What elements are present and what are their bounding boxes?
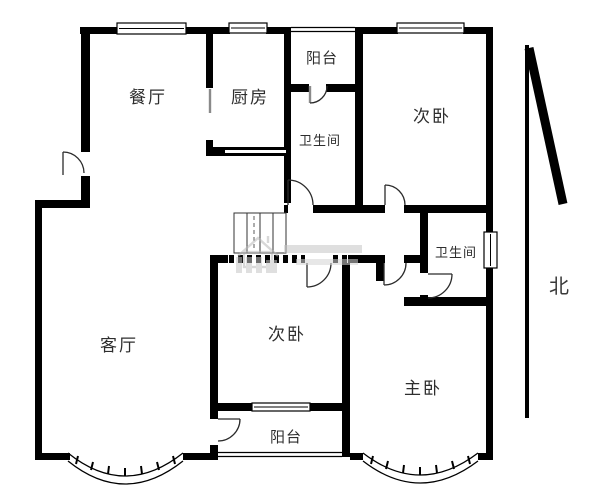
wall-bedmid-bottom-l: [218, 403, 252, 411]
north-arrow-barb: [529, 48, 563, 204]
label-bedroom-mid: 次卧: [268, 325, 306, 345]
door-entrance: [63, 152, 84, 175]
label-master-bedroom: 主卧: [404, 379, 442, 399]
wall-corridor-bottom-c: [404, 255, 428, 263]
wall-balcony-top-bottom-l: [284, 84, 309, 92]
wall-left-step: [35, 200, 90, 208]
wall-corridor-top-a: [284, 205, 288, 213]
wall-bath1-left: [284, 27, 291, 203]
door-bathroom-right: [428, 274, 452, 298]
wall-corridor-top-c: [404, 205, 490, 213]
wall-door-stub: [376, 263, 384, 281]
bay-window-master: [363, 453, 478, 483]
door-bedroom-top: [385, 185, 405, 205]
wall-left-upper: [81, 27, 90, 152]
stairs: [234, 213, 286, 253]
wall-bedmid-right: [342, 263, 350, 457]
wall-right-upper: [486, 27, 493, 232]
windows: [117, 23, 497, 411]
door-master: [384, 263, 406, 285]
wall-bottom-left-a: [35, 453, 70, 460]
wall-left-lower: [35, 200, 42, 460]
label-bathroom-top: 卫生间: [299, 134, 341, 149]
wall-kitchen-left: [206, 27, 213, 88]
wall-corridor-bottom-a: [210, 255, 228, 263]
wall-bedmid-left: [210, 263, 218, 419]
north-arrow: [527, 45, 563, 418]
label-balcony-bottom: 阳台: [270, 428, 302, 446]
door-bathroom-top: [288, 180, 313, 205]
label-living-room: 客厅: [100, 336, 138, 356]
label-north: 北: [549, 274, 571, 298]
label-bathroom-right: 卫生间: [435, 246, 477, 261]
door-bedroom-mid: [307, 263, 331, 287]
bay-windows: [68, 453, 478, 484]
floor-plan-drawing: 餐厅 厨房 阳台 卫生间 次卧 卫生间 北 客厅 次卧 主卧 阳台: [0, 0, 600, 499]
wall-right-lower: [486, 268, 493, 460]
door-balcony-bottom: [218, 419, 240, 441]
label-balcony-top: 阳台: [306, 49, 338, 67]
door-balcony-top: [310, 86, 327, 103]
wall-bath2-bottom: [404, 297, 490, 306]
wall-bedmid-left-low: [210, 445, 218, 453]
wall-left-upper2: [81, 176, 90, 202]
bay-window-living: [68, 453, 183, 484]
wall-bath1-right: [355, 27, 363, 213]
wall-bottom-right-a: [350, 453, 363, 460]
label-dining-room: 餐厅: [129, 88, 167, 108]
wall-bottom-left-b: [183, 453, 218, 460]
label-kitchen: 厨房: [231, 88, 269, 108]
wall-corridor-top-b: [313, 205, 385, 213]
wall-bedmid-bottom-r: [310, 403, 342, 411]
label-bedroom-top: 次卧: [413, 107, 451, 127]
wall-bottom-right-b: [478, 453, 493, 460]
floor-plan-page: 餐厅 厨房 阳台 卫生间 次卧 卫生间 北 客厅 次卧 主卧 阳台: [0, 0, 600, 499]
